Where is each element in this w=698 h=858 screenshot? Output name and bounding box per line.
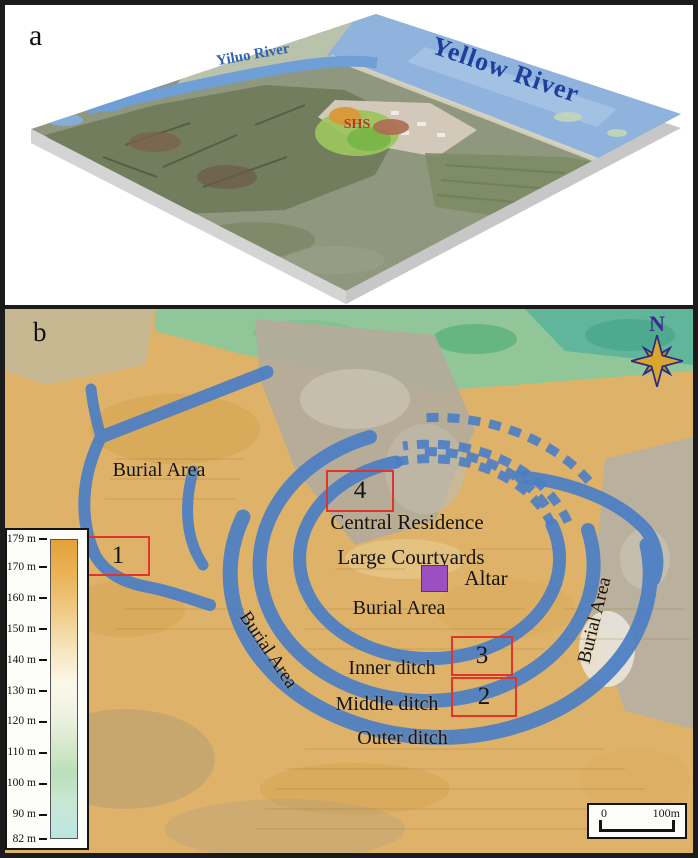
middle-ditch-label: Middle ditch: [321, 693, 453, 715]
tick-100m: 100 m: [7, 777, 47, 789]
north-indicator: N: [629, 313, 685, 399]
scale-end-label: 100m: [653, 806, 680, 821]
tick-130m: 130 m: [7, 685, 47, 697]
inner-ditch-label: Inner ditch: [331, 657, 453, 679]
marker-3-number: 3: [476, 642, 489, 670]
tick-179m: 179 m: [7, 533, 47, 545]
tick-110m: 110 m: [7, 746, 47, 758]
tick-170m: 170 m: [7, 561, 47, 573]
marker-box-1: 1: [86, 536, 150, 576]
tick-150m: 150 m: [7, 623, 47, 635]
compass-rose-icon: [631, 335, 683, 387]
outer-ditch-label: Outer ditch: [335, 727, 470, 749]
elevation-ticks: 179 m 170 m 160 m 150 m 140 m 130 m 120 …: [7, 539, 47, 839]
marker-1-number: 1: [112, 542, 125, 570]
panel-a-3d-terrain: a Yiluo River Yellow River SHS: [5, 5, 693, 305]
shs-site-label: SHS: [327, 117, 387, 133]
marker-box-2: 2: [451, 677, 517, 717]
scale-start-label: 0: [601, 806, 607, 821]
marker-2-number: 2: [478, 683, 491, 711]
site-map-graphic: [5, 309, 693, 858]
elevation-gradient-bar: [50, 539, 78, 839]
tick-160m: 160 m: [7, 592, 47, 604]
tick-120m: 120 m: [7, 715, 47, 727]
marker-box-3: 3: [451, 636, 513, 676]
scale-bar: 0 100m: [587, 803, 687, 839]
altar-marker: [421, 565, 448, 592]
terrain-top-face: [31, 9, 693, 291]
central-residence-label: Central Residence: [311, 511, 503, 534]
terrain-3d-graphic: [5, 5, 693, 305]
tick-82m: 82 m: [13, 833, 47, 845]
tick-90m: 90 m: [13, 808, 47, 820]
panel-b-letter: b: [33, 317, 47, 348]
burial-area-nw-label: Burial Area: [103, 459, 215, 481]
panel-a-letter: a: [29, 19, 42, 53]
marker-box-4: 4: [326, 470, 394, 512]
figure-two-panel-map: a Yiluo River Yellow River SHS: [0, 0, 698, 858]
altar-label: Altar: [451, 567, 521, 590]
elevation-legend: 179 m 170 m 160 m 150 m 140 m 130 m 120 …: [5, 528, 89, 850]
marker-4-number: 4: [354, 477, 367, 505]
north-label: N: [629, 313, 685, 335]
tick-140m: 140 m: [7, 654, 47, 666]
panel-b-site-map: b N Burial Area Central Residence Large …: [5, 305, 693, 858]
burial-area-center-label: Burial Area: [343, 597, 455, 619]
scale-bracket: [599, 820, 675, 832]
